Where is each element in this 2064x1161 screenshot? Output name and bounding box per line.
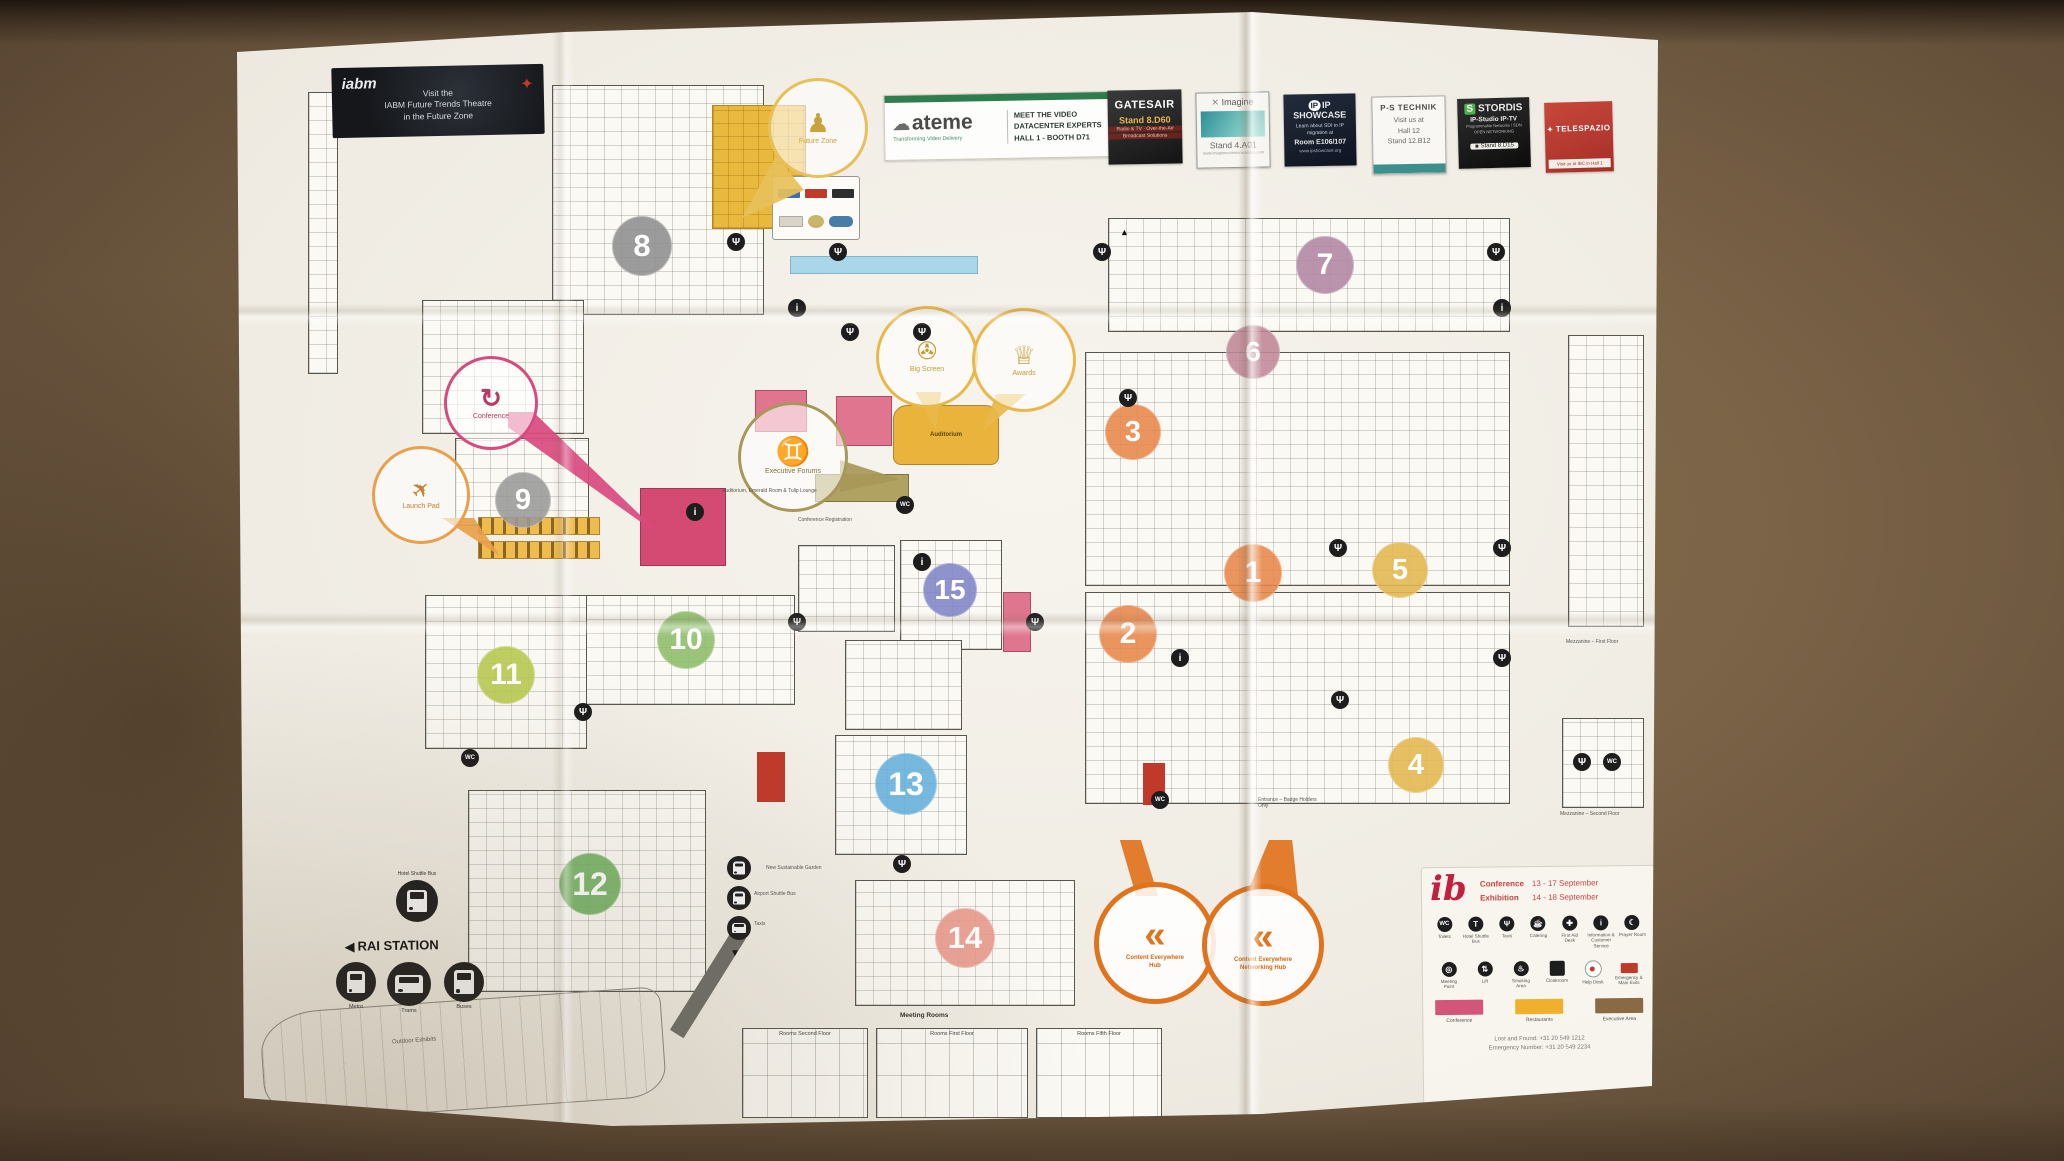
exhibit-hall-grid [1085, 352, 1510, 586]
metro-icon [336, 962, 376, 1002]
hall-10-badge: 10 [657, 611, 715, 669]
ateme-line2: DATACENTER EXPERTS [1014, 119, 1110, 132]
ip-showcase-line1: Learn about SDI to IPmigration at [1284, 122, 1356, 137]
legend-item: iInformation & Customer Service [1587, 915, 1615, 948]
meeting-rooms-group: Rooms Second Floor [742, 1028, 868, 1118]
big-screen-label: Big Screen [910, 366, 944, 374]
hall-2-badge: 2 [1099, 605, 1157, 663]
legend-item: ♨Smoking Area [1507, 961, 1535, 989]
conference-dates-label: Conference [1480, 877, 1532, 891]
exhibit-hall-grid [798, 545, 895, 632]
exhibit-hall-grid [1568, 335, 1644, 627]
iabm-banner-text: Visit the IABM Future Trends Theatre in … [332, 86, 545, 125]
ps-technik-bar [1374, 163, 1446, 173]
legend-glyph-icon [1620, 963, 1637, 973]
station-trams: Trams [384, 962, 434, 1014]
hall-4-badge: 4 [1388, 737, 1444, 793]
map-sheet: Auditorium iabm Visit the IABM Future Tr… [0, 0, 2064, 1161]
hall-8-badge: 8 [612, 216, 672, 276]
legend-swatch-color [1435, 999, 1483, 1015]
legend-glyph-icon: ☾ [1625, 915, 1640, 930]
big-screen-callout: Big Screen [876, 306, 978, 408]
hotel-shuttle-stop-2 [724, 856, 754, 880]
trophy-icon [1012, 342, 1035, 368]
restaurant-icon: Ψ [727, 233, 745, 251]
restaurant-icon: Ψ [574, 703, 592, 721]
content-everywhere-logo-icon [1252, 918, 1273, 956]
content-everywhere-networking-hub-callout: Content EverywhereNetworking Hub [1202, 884, 1324, 1006]
gatesair-logo: GATESAIR [1108, 98, 1182, 111]
executive-forums-callout: Executive Forums [738, 402, 848, 512]
hub1-label: Content EverywhereHub [1126, 955, 1184, 969]
information-icon: i [913, 553, 931, 571]
person-icon [806, 110, 829, 136]
emergency-phone: Emergency Number: +31 20 549 2234 [1432, 1043, 1648, 1055]
legend-panel: Conference13 - 17 September Exhibition14… [1421, 865, 1658, 1111]
legend-item: ΨTaxis [1493, 916, 1521, 949]
film-camera-icon [917, 340, 937, 364]
conference-callout-label: Conference [473, 413, 509, 421]
legend-item-label: Prayer Room [1618, 932, 1646, 938]
hall-9-badge: 9 [495, 472, 551, 528]
legend-swatch-label: Restaurants [1515, 1016, 1563, 1023]
exhibit-hall-grid [845, 640, 962, 730]
hotel-shuttle-label: Hotel Shuttle Bus [382, 872, 452, 878]
red-kiosk-a [757, 752, 785, 802]
legend-item: Cloakroom [1543, 961, 1571, 989]
ateme-logo-block: ateme Transforming Video Delivery [893, 110, 1002, 143]
imagine-image-band [1201, 110, 1265, 137]
legend-icon-row-1: WCToiletsTHotel Shuttle BusΨTaxis☕Cateri… [1430, 915, 1646, 950]
hall-7-badge: 7 [1296, 236, 1354, 294]
legend-item-label: Lift [1471, 978, 1499, 984]
stordis-stand: Stand 8.D15 [1471, 143, 1518, 150]
auditorium-blob: Auditorium [893, 405, 999, 465]
legend-swatch-label: Executive Area [1595, 1016, 1643, 1023]
meeting-rooms-group: Rooms First Floor [876, 1028, 1028, 1118]
restaurant-icon: Ψ [1493, 539, 1511, 557]
legend-phones: Lost and Found: +31 20 549 1212 Emergenc… [1431, 1033, 1647, 1054]
ibc-logo [1430, 874, 1476, 905]
meeting-rooms-title: Meeting Rooms [900, 1012, 948, 1019]
lounge-strip-label: Auditorium, Emerald Room & Tulip Lounge [722, 489, 882, 495]
legend-item: Help Desk [1579, 960, 1607, 988]
information-icon: i [686, 503, 704, 521]
hall-5-badge: 5 [1372, 542, 1428, 598]
restaurant-icon: Ψ [1119, 389, 1137, 407]
mezzanine2-label: Mezzanine – Second Floor [1560, 812, 1640, 818]
executive-forums-label: Executive Forums [765, 468, 821, 476]
legend-item: ✚First Aid Desk [1556, 916, 1584, 949]
ps-technik-banner: P-S TECHNIK Visit us atHall 12Stand 12.B… [1371, 95, 1446, 174]
iabm-banner: iabm Visit the IABM Future Trends Theatr… [331, 64, 544, 138]
content-everywhere-hub-callout: Content EverywhereHub [1094, 882, 1216, 1004]
taxi-stop [724, 916, 754, 940]
legend-item: Emergency & Main Exits [1615, 960, 1643, 988]
legend-swatch-label: Conference [1435, 1017, 1483, 1024]
ip-showcase-logo: IP SHOWCASE [1283, 99, 1355, 120]
launch-pad-callout: Launch Pad [372, 446, 470, 544]
stordis-banner: STORDIS IP-Studio IP-TV Programmable Net… [1457, 97, 1531, 169]
legend-swatch: Executive Area [1595, 998, 1643, 1023]
legend-glyph-icon: ♨ [1513, 961, 1528, 976]
legend-glyph-icon [1584, 960, 1601, 977]
gatesair-stand: Stand 8.D60 [1108, 114, 1182, 125]
conference-dates: 13 - 17 September [1532, 878, 1598, 888]
legend-swatch: Conference [1435, 999, 1483, 1024]
airport-shuttle-label: Airport Shuttle Bus [754, 892, 814, 898]
hotel-shuttle-stop: Hotel Shuttle Bus [382, 872, 452, 922]
shuttle-bus-icon [727, 856, 751, 880]
restaurant-icon: Ψ [1573, 753, 1591, 771]
ip-showcase-banner: IP SHOWCASE Learn about SDI to IPmigrati… [1283, 93, 1356, 166]
ateme-banner-text: MEET THE VIDEO DATACENTER EXPERTS HALL 1… [1007, 108, 1111, 144]
toilets-icon: WC [896, 496, 914, 514]
hall-1-badge: 1 [1224, 544, 1282, 602]
legend-glyph-icon: i [1593, 915, 1608, 930]
ateme-tagline: Transforming Video Delivery [893, 135, 1001, 143]
imagine-logo: Imagine [1196, 96, 1268, 108]
hall-13-badge: 13 [875, 753, 937, 815]
exhibition-dates: 14 - 18 September [1532, 892, 1598, 902]
restaurant-icon: Ψ [1487, 243, 1505, 261]
legend-item-label: Meeting Point [1435, 979, 1463, 990]
ip-showcase-url: www.ipshowcase.org [1284, 147, 1356, 153]
ateme-green-bar [884, 92, 1108, 103]
ip-showcase-room: Room E106/107 [1284, 138, 1356, 146]
imagine-url: www.imaginecommunications.com [1197, 149, 1269, 155]
partner-logo-chip [829, 216, 853, 227]
legend-item: ◎Meeting Point [1435, 962, 1463, 990]
legend-glyph-icon: T [1468, 917, 1483, 932]
legend-item-label: Hotel Shuttle Bus [1462, 934, 1490, 945]
legend-icon-row-2: ◎Meeting Point⇅Lift♨Smoking AreaCloakroo… [1431, 960, 1647, 990]
legend-item: THotel Shuttle Bus [1462, 917, 1490, 950]
sustainable-garden-label: New Sustainable Garden [766, 866, 830, 872]
legend-dates: Conference13 - 17 September Exhibition14… [1480, 872, 1646, 905]
auditorium-label: Auditorium [930, 432, 962, 439]
hub2-label: Content EverywhereNetworking Hub [1234, 957, 1292, 971]
rocket-icon [412, 479, 430, 501]
hall-12-badge: 12 [559, 853, 621, 915]
restaurant-icon: Ψ [1493, 649, 1511, 667]
airport-shuttle-stop [724, 886, 754, 910]
restaurant-icon: Ψ [841, 323, 859, 341]
taxis-label: Taxis [754, 922, 814, 928]
station-buses: Buses [442, 962, 486, 1010]
restaurant-icon: Ψ [913, 323, 931, 341]
entrance-arrow [730, 948, 740, 959]
telespazio-strip: Visit us at IBC in Hall 1 [1549, 158, 1611, 169]
information-icon: i [788, 299, 806, 317]
legend-item-label: Taxis [1493, 933, 1521, 939]
taxi-icon [727, 916, 751, 940]
forum-pink-block [640, 488, 726, 566]
legend-item-label: Toilets [1430, 934, 1458, 940]
stordis-logo: STORDIS [1457, 102, 1529, 115]
restaurant-icon: Ψ [788, 613, 806, 631]
content-everywhere-logo-icon [1144, 916, 1165, 954]
legend-swatch: Restaurants [1515, 998, 1563, 1023]
legend-item-label: First Aid Desk [1556, 933, 1584, 944]
partner-logo-chip [779, 216, 803, 227]
hall-3-badge: 3 [1105, 404, 1161, 460]
legend-item: ☾Prayer Room [1618, 915, 1646, 948]
restaurant-icon: Ψ [1026, 613, 1044, 631]
legend-item: ☕Catering [1524, 916, 1552, 949]
toilets-icon: WC [1603, 753, 1621, 771]
future-zone-label: Future Zone [799, 138, 837, 146]
hall-14-badge: 14 [935, 908, 995, 968]
awards-callout: Awards [972, 308, 1076, 412]
legend-glyph-icon: ◎ [1441, 962, 1456, 977]
restaurant-icon: Ψ [1331, 691, 1349, 709]
partner-logo-chip [805, 189, 827, 198]
information-icon: i [1493, 299, 1511, 317]
shuttle-bus-icon [396, 880, 438, 922]
ateme-banner: ateme Transforming Video Delivery MEET T… [883, 91, 1110, 161]
restaurant-icon: Ψ [1093, 243, 1111, 261]
legend-item-label: Smoking Area [1507, 978, 1535, 989]
bus-icon [444, 962, 484, 1002]
partner-logo-chip [808, 215, 824, 228]
information-icon: i [1171, 649, 1189, 667]
entrance-arrow [1120, 228, 1129, 238]
legend-item-label: Cloakroom [1543, 978, 1571, 984]
toilets-icon: WC [461, 749, 479, 767]
gatesair-line1: Radio & TV · Over-the-Air [1108, 125, 1182, 132]
hall9-dot-strip-2 [478, 541, 600, 559]
gatesair-banner: GATESAIR Stand 8.D60 Radio & TV · Over-t… [1107, 89, 1182, 164]
telespazio-logo: TELESPAZIO [1545, 123, 1613, 134]
cycle-arrow-icon [480, 385, 502, 411]
rai-station-title: RAI STATION [345, 937, 439, 954]
maple-leaf-icon: ✦ [520, 74, 534, 94]
restaurant-icon: Ψ [829, 243, 847, 261]
conference-callout: Conference [444, 356, 538, 450]
legend-glyph-icon: ⇅ [1477, 962, 1492, 977]
legend-item-label: Catering [1524, 933, 1552, 939]
legend-item-label: Help Desk [1579, 979, 1607, 985]
mezzanine1-label: Mezzanine – First Floor [1566, 640, 1646, 646]
hall-11-badge: 11 [477, 646, 535, 704]
entrance-badge-label: Entrance – Badge Holders Only [1258, 798, 1328, 810]
photo-scene: Auditorium iabm Visit the IABM Future Tr… [0, 0, 2064, 1161]
exhibition-dates-label: Exhibition [1480, 891, 1532, 905]
partner-logo-chip [832, 189, 854, 198]
tram-icon [387, 962, 431, 1006]
legend-item-label: Information & Customer Service [1587, 932, 1615, 948]
restaurant-icon: Ψ [1329, 539, 1347, 557]
legend-glyph-icon: WC [1437, 917, 1452, 932]
two-faces-icon [776, 438, 811, 466]
ps-technik-logo: P-S TECHNIK [1372, 102, 1444, 112]
legend-glyph-icon: ✚ [1562, 916, 1577, 931]
conference-registration-label: Conference Registration [798, 518, 888, 524]
telespazio-banner: TELESPAZIO Visit us at IBC in Hall 1 [1544, 101, 1614, 173]
gatesair-line2: Broadcast Solutions [1108, 132, 1182, 139]
awards-label: Awards [1012, 370, 1035, 378]
legend-item: ⇅Lift [1471, 961, 1499, 989]
shuttle-bus-icon [727, 886, 751, 910]
ateme-logo: ateme [893, 110, 1001, 136]
legend-swatches: ConferenceRestaurantsExecutive Area [1431, 997, 1647, 1023]
meeting-rooms-group: Rooms Fifth Floor [1036, 1028, 1162, 1118]
legend-item-label: Emergency & Main Exits [1615, 975, 1643, 986]
canal-strip [790, 256, 978, 274]
imagine-banner: Imagine Stand 4.A01 www.imaginecommunica… [1195, 91, 1270, 168]
stordis-line2: Programmable Networks / SDNOPEN NETWORKI… [1458, 122, 1530, 135]
hall-6-badge: 6 [1226, 325, 1280, 379]
legend-swatch-color [1595, 998, 1643, 1014]
toilets-icon: WC [1151, 791, 1169, 809]
legend-swatch-color [1515, 998, 1563, 1014]
legend-glyph-icon [1549, 961, 1564, 976]
station-metro: Metro [334, 962, 378, 1010]
future-zone-callout: Future Zone [768, 78, 868, 178]
legend-item: WCToilets [1430, 917, 1458, 950]
legend-glyph-icon: ☕ [1531, 916, 1546, 931]
ateme-line3: HALL 1 - BOOTH D71 [1014, 131, 1110, 144]
hall-15-badge: 15 [923, 563, 977, 617]
legend-glyph-icon: Ψ [1499, 916, 1514, 931]
restaurant-icon: Ψ [893, 855, 911, 873]
ps-technik-lines: Visit us atHall 12Stand 12.B12 [1373, 115, 1446, 148]
